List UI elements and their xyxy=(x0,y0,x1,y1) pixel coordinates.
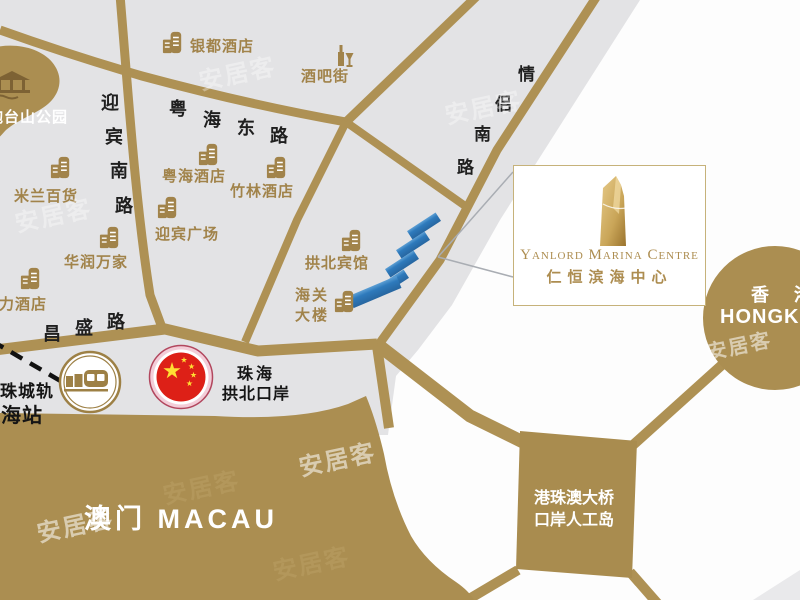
poi-label-yindu-hotel: 银都酒店 xyxy=(190,35,254,56)
hongkong-label-en: HONGKONG xyxy=(720,306,800,329)
project-name-cn: 仁恒滨海中心 xyxy=(514,266,705,287)
station-label-line2: 珠海站 xyxy=(0,399,43,428)
yingbin-plaza-building-icon xyxy=(156,195,181,220)
yuehai-hotel-building-icon xyxy=(197,142,222,167)
customs-building-icon xyxy=(333,289,358,314)
rail-station-marker xyxy=(60,352,120,412)
customs-line2: 大楼 xyxy=(295,306,329,326)
poi-label-customs-building: 海关 大楼 xyxy=(295,286,329,326)
hongkong-label-cn: 香 港 xyxy=(751,281,800,307)
poi-label-zhulin-hotel: 竹林酒店 xyxy=(230,180,294,201)
project-logo-card: Yanlord Marina Centre 仁恒滨海中心 xyxy=(513,165,706,306)
road-bridge-to-hk-line xyxy=(633,364,723,445)
macau-label: 澳门 MACAU xyxy=(84,497,278,536)
china-flag-icon xyxy=(150,346,213,409)
poi-label-gongbei-hotel: 拱北宾馆 xyxy=(305,252,369,273)
corner-landmass xyxy=(753,570,800,600)
meili-hotel-building-icon xyxy=(19,266,44,291)
project-name-en: Yanlord Marina Centre xyxy=(514,247,705,264)
park-label: 炮台山公园 xyxy=(0,106,68,127)
poi-label-meili-hotel: 魅力酒店 xyxy=(0,293,47,314)
bridge-island-label-line2: 口岸人工岛 xyxy=(517,506,631,530)
road-to-bridge-line xyxy=(377,344,527,444)
zhulin-hotel-building-icon xyxy=(265,155,290,180)
road-bridge-southwest-line xyxy=(464,570,518,600)
poi-label-yuehai-hotel: 粤海酒店 xyxy=(162,165,226,186)
gongbei-hotel-building-icon xyxy=(340,228,365,253)
road-bridge-southeast-line xyxy=(630,572,658,600)
china-resources-building-icon xyxy=(98,225,123,250)
map-stage: 银都酒店 酒吧街 米兰百货 粤海酒店 竹林酒店 迎宾广场 华润万家 魅力酒店 拱… xyxy=(0,0,800,600)
milan-store-building-icon xyxy=(49,155,74,180)
tower-logo-icon xyxy=(588,174,632,246)
customs-line1: 海关 xyxy=(295,286,329,306)
yindu-hotel-building-icon xyxy=(161,30,186,55)
poi-label-yingbin-plaza: 迎宾广场 xyxy=(155,223,219,244)
bridge-island-label-line1: 港珠澳大桥 xyxy=(517,484,631,508)
poi-label-milan-store: 米兰百货 xyxy=(14,185,78,206)
poi-label-china-resources: 华润万家 xyxy=(64,251,128,272)
poi-label-bar-street: 酒吧街 xyxy=(301,65,349,86)
border-gate-label-line2: 拱北口岸 xyxy=(222,380,290,404)
